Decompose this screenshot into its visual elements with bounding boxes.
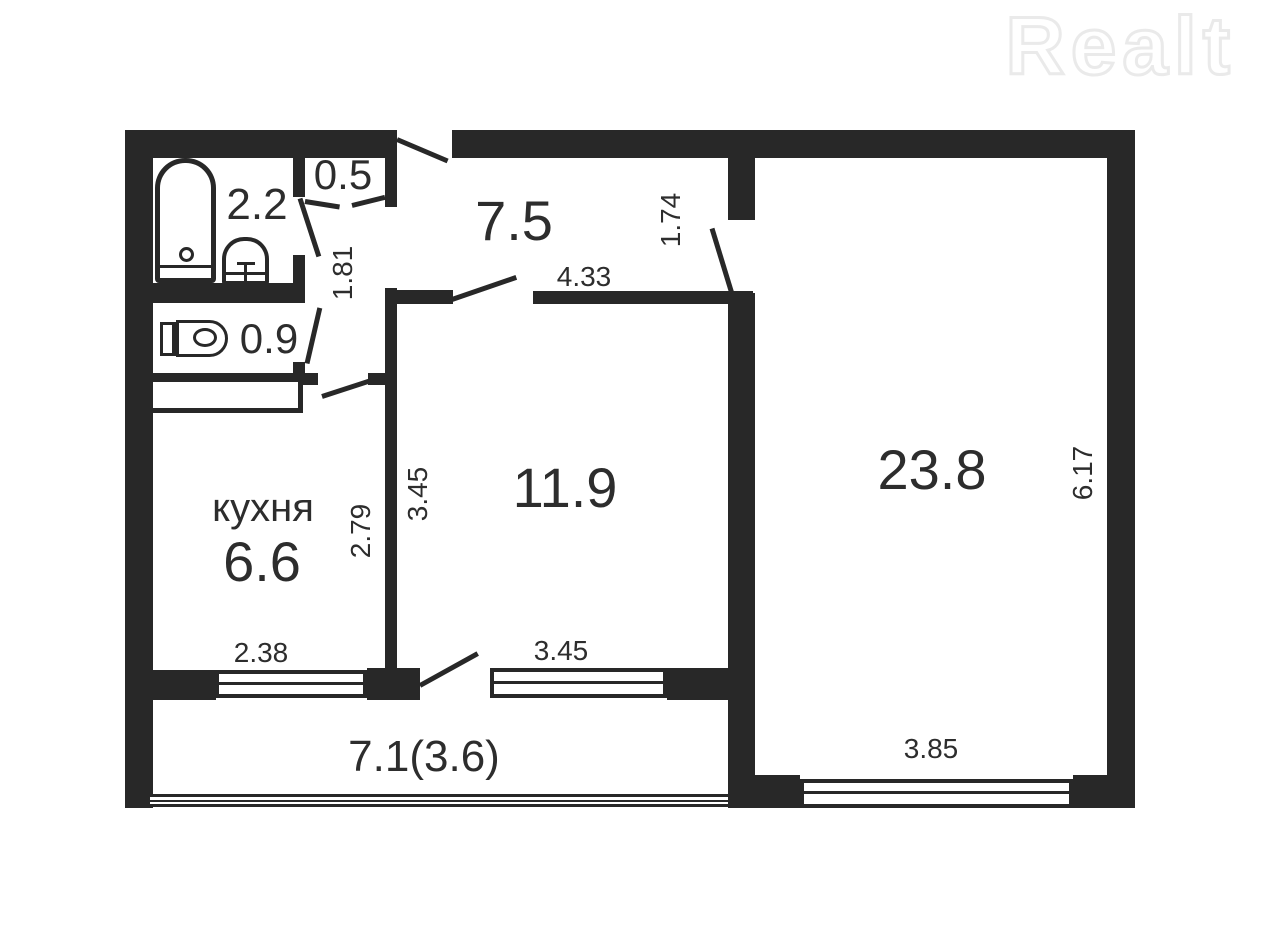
wall-right (1107, 130, 1135, 808)
room-mid-window-sill (494, 681, 663, 684)
label-balcony-area: 7.1(3.6) (348, 735, 500, 779)
dim-room-mid-window: 3.45 (534, 637, 589, 665)
balcony-glazing-line (150, 800, 728, 802)
realt-logo: Realt (1005, 0, 1236, 94)
wall-balcony-c (667, 668, 728, 700)
room-mid-door-leaf (451, 275, 517, 302)
balcony-door-leaf (419, 651, 479, 687)
sink-tap-stem (244, 262, 247, 281)
wall-room-mid-left (385, 288, 397, 672)
dim-passage: 1.74 (657, 193, 685, 248)
wall-left (125, 130, 153, 808)
wc-door-leaf (305, 307, 323, 364)
dim-room-mid-height: 3.45 (404, 467, 432, 522)
dim-room-large-window: 3.85 (904, 735, 959, 763)
balcony-glazing (150, 794, 728, 807)
label-kitchen-name: кухня (212, 488, 314, 528)
room-mid-window (490, 668, 667, 698)
bathtub-drain (179, 247, 194, 262)
dim-kitchen-window: 2.38 (234, 639, 289, 667)
dim-room-large-height: 6.17 (1069, 446, 1097, 501)
toilet-bowl-inner (193, 328, 217, 347)
wall-balcony-a (153, 670, 216, 700)
bath-door-leaf (298, 198, 322, 258)
wall-room-large-bottom-right (1073, 775, 1135, 808)
room-large-window (800, 779, 1073, 808)
dim-corridor-length: 1.81 (329, 246, 357, 301)
toilet-tank-line (172, 325, 175, 353)
wall-bath-closet-divider (293, 150, 305, 197)
wall-hall-bottom-right (533, 291, 753, 304)
room-large-door-leaf (710, 228, 735, 294)
wall-room-large-bottom-left (728, 775, 800, 808)
wall-room-mid-room-large (728, 293, 755, 808)
dim-kitchen-height: 2.79 (347, 504, 375, 559)
wall-bath-door-stub (293, 255, 305, 283)
kitchen-door-leaf (321, 378, 372, 399)
wall-hall-room-large-stub (728, 130, 755, 220)
label-room-mid-area: 11.9 (513, 460, 618, 516)
bathtub (155, 158, 216, 283)
kitchen-window-sill (219, 682, 363, 685)
label-bath-area: 2.2 (226, 183, 287, 227)
floor-plan: Realt (0, 0, 1264, 948)
wall-bath-bottom (125, 283, 305, 303)
dim-hall-width: 4.33 (557, 263, 612, 291)
wall-hall-bottom-left (385, 290, 453, 304)
vent-shaft (153, 373, 303, 413)
sink (222, 237, 269, 285)
room-large-window-sill (804, 791, 1069, 794)
toilet-bowl (176, 320, 228, 357)
label-hall-area: 7.5 (475, 193, 553, 249)
kitchen-window (215, 670, 367, 698)
bathtub-line (160, 265, 211, 268)
wall-balcony-pier (367, 668, 420, 700)
label-closet-area: 0.5 (314, 154, 372, 196)
label-wc-area: 0.9 (240, 318, 298, 360)
label-kitchen-area: 6.6 (223, 534, 301, 590)
closet-door-leaf-left (305, 199, 340, 209)
entrance-door-leaf (396, 137, 449, 163)
wall-top-right (452, 130, 1135, 158)
wall-kitchen-door-stub-left (302, 373, 318, 385)
label-room-large-area: 23.8 (878, 442, 987, 498)
